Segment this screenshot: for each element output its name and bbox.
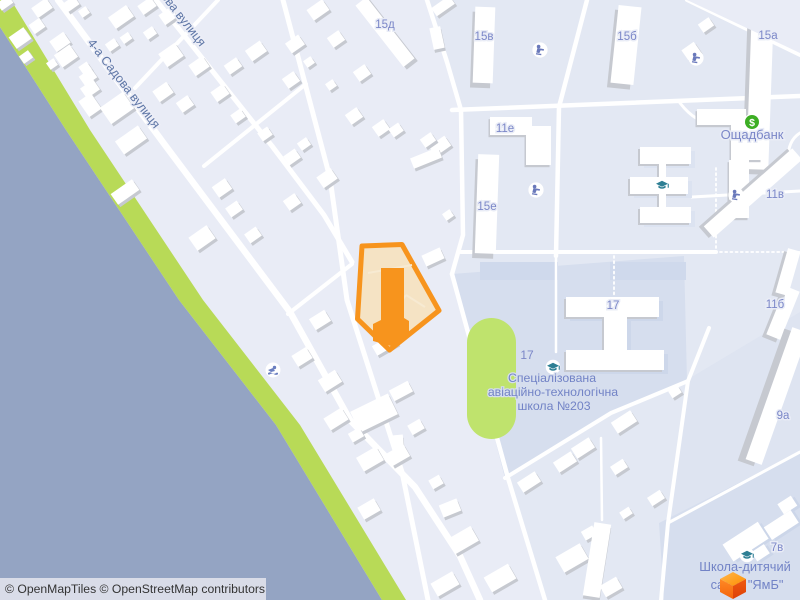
svg-text:Школа-дитячий: Школа-дитячий <box>699 559 791 574</box>
svg-text:15е: 15е <box>477 201 496 213</box>
svg-text:7в: 7в <box>771 542 784 554</box>
svg-text:школа №203: школа №203 <box>517 399 590 413</box>
svg-text:17: 17 <box>520 348 534 362</box>
svg-text:© OpenMapTiles © OpenStreetMap: © OpenMapTiles © OpenStreetMap contribut… <box>5 582 265 596</box>
svg-text:11б: 11б <box>766 299 785 311</box>
svg-text:15а: 15а <box>758 30 778 42</box>
svg-text:17: 17 <box>607 300 620 312</box>
svg-text:9а: 9а <box>777 410 790 422</box>
svg-text:15в: 15в <box>475 31 494 43</box>
svg-text:15б: 15б <box>617 31 637 43</box>
svg-text:Ощадбанк: Ощадбанк <box>721 127 784 142</box>
svg-text:15д: 15д <box>375 19 395 31</box>
svg-text:авіаційно-технологічна: авіаційно-технологічна <box>488 385 618 399</box>
svg-text:11е: 11е <box>496 123 514 135</box>
svg-text:Спеціалізована: Спеціалізована <box>508 371 596 385</box>
svg-text:11в: 11в <box>766 189 784 201</box>
